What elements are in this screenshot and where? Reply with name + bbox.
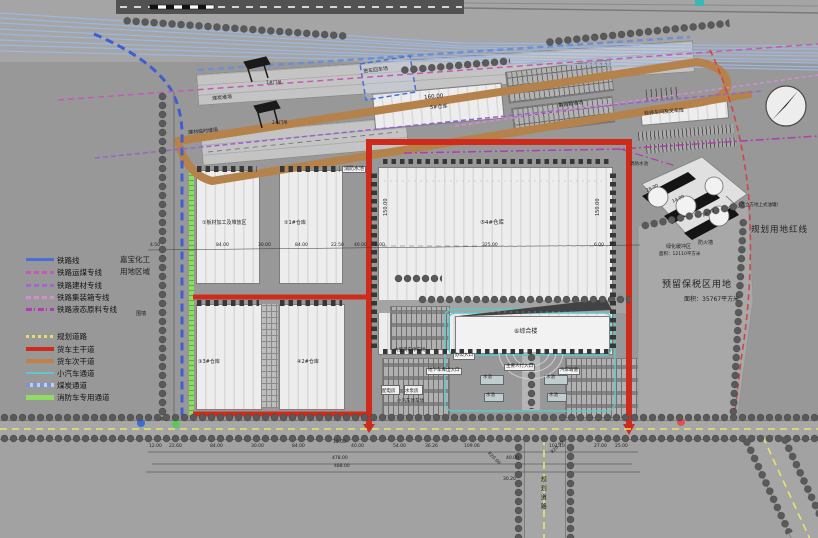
dim-road-width: 40.00 bbox=[506, 457, 519, 462]
warehouse-2-label: ④2#仓库 bbox=[297, 360, 319, 365]
dim: 22.50 bbox=[331, 244, 344, 249]
dim: 36.26 bbox=[425, 445, 438, 450]
legend-label: 铁路建材专线 bbox=[57, 280, 102, 291]
warehouse-4-label: ⑤4#仓库 bbox=[480, 221, 504, 227]
warehouse-2 bbox=[279, 304, 345, 410]
buffer-area-label: 面积：12110平方米 bbox=[659, 253, 700, 258]
dim: 325.00 bbox=[482, 244, 498, 249]
tree-col-east-boundary bbox=[729, 218, 748, 418]
tree-row-road-south bbox=[0, 434, 818, 443]
dock-trucks bbox=[280, 300, 342, 306]
legend-swatch-road-4 bbox=[26, 383, 54, 387]
dim-wh4-height: 150.00 bbox=[596, 199, 601, 217]
legend-label: 规划道路 bbox=[57, 331, 87, 342]
dock-trucks bbox=[610, 172, 616, 348]
legend-swatch-rail-0 bbox=[26, 258, 54, 261]
dock-trucks bbox=[383, 159, 609, 164]
tank-note-label: （万立方地上式油罐） bbox=[736, 204, 781, 209]
legend-swatch-road-2 bbox=[26, 359, 54, 363]
car-ramp-label: 汽车坡道 bbox=[558, 368, 580, 375]
dock-trucks bbox=[197, 300, 259, 306]
dock-trucks bbox=[197, 166, 257, 172]
warehouse-1 bbox=[279, 170, 343, 284]
dim: 6.00 bbox=[594, 244, 604, 249]
dim: 84.00 bbox=[210, 445, 223, 450]
legend-swatch-rail-3 bbox=[26, 296, 54, 299]
legend-label: 货车次干道 bbox=[57, 356, 95, 367]
fire-pool-label: 消防水池 bbox=[342, 166, 366, 173]
legend-label: 铁路集装箱专线 bbox=[57, 292, 110, 303]
dim-total: 488.00 bbox=[334, 465, 350, 470]
chemical-zone-label: 嘉宝化工 bbox=[120, 256, 150, 264]
dim: 84.00 bbox=[292, 445, 305, 450]
garage-entry-label: 地下车库出入口 bbox=[426, 368, 462, 375]
legend-label: 小汽车通道 bbox=[57, 368, 95, 379]
legend-label: 货车主干道 bbox=[57, 344, 95, 355]
legend-swatch-road-3 bbox=[26, 372, 54, 374]
railway-main-line bbox=[94, 34, 182, 418]
warehouse-plate-label: ①板材加工及堆放区 bbox=[202, 221, 246, 226]
pool-label: 水池 bbox=[486, 394, 495, 399]
planned-road-label: 规划道路 bbox=[539, 476, 545, 512]
warehouse-1-label: ②1#仓库 bbox=[284, 221, 306, 226]
legend-swatch-rail-2 bbox=[26, 284, 54, 287]
dim: 27.00 bbox=[594, 445, 607, 450]
dim: 40.00 bbox=[354, 244, 367, 249]
pump-room-label: 水泵房 bbox=[405, 390, 419, 395]
dim: 12.00 bbox=[149, 445, 162, 450]
bonded-zone-label: 预留保税区用地 bbox=[662, 281, 732, 290]
dim: 30.00 bbox=[258, 244, 271, 249]
tree-row-road-north bbox=[0, 413, 818, 422]
legend-label: 铁路液态原料专线 bbox=[57, 304, 117, 315]
dim: 22.60 bbox=[169, 445, 182, 450]
dock-trucks bbox=[371, 172, 377, 348]
dim: 109.06 bbox=[464, 445, 480, 450]
dim: 30.00 bbox=[251, 445, 264, 450]
legend-swatch-rail-4 bbox=[26, 308, 54, 311]
legend-label: 铁路线 bbox=[57, 255, 80, 266]
dim: 40.00 bbox=[351, 445, 364, 450]
truck-parking-label: 大型货车停车场 bbox=[394, 349, 426, 354]
compass-north-icon bbox=[766, 86, 806, 126]
car-parking-right bbox=[565, 358, 639, 418]
tree-col-west bbox=[158, 92, 168, 420]
red-line-label: 规划用地红线 bbox=[751, 226, 808, 235]
rack-comb bbox=[646, 87, 681, 102]
warehouse-plate bbox=[196, 170, 260, 284]
legend-label: 铁路运煤专线 bbox=[57, 267, 102, 278]
site-master-plan: 铁路线 铁路运煤专线 铁路建材专线 铁路集装箱专线 铁路液态原料专线 规划道路 … bbox=[0, 0, 818, 538]
legend-label: 消防车专用通道 bbox=[57, 392, 110, 403]
legend-label: 煤炭通道 bbox=[57, 380, 87, 391]
buffer-label: 绿化缓冲区 bbox=[666, 245, 691, 250]
firewall-label: 防火墙 bbox=[698, 241, 713, 246]
main-entry-label: 主要人行入口 bbox=[504, 364, 535, 371]
dim-tank: 28.00 bbox=[646, 185, 660, 195]
dim: 54.00 bbox=[393, 445, 406, 450]
crane-1-label: 1#门吊 bbox=[266, 82, 282, 87]
pool-label: 水池 bbox=[549, 394, 558, 399]
truck-parking-lot bbox=[390, 306, 450, 350]
legend-swatch-road-0 bbox=[26, 335, 54, 338]
tree-row-wh4-inner bbox=[394, 274, 442, 283]
office-label: ⑥综合楼 bbox=[514, 329, 537, 335]
tree-col-sroad-east bbox=[566, 443, 575, 538]
dim-wh4-height: 150.00 bbox=[384, 199, 389, 217]
pool-label: 水池 bbox=[546, 376, 555, 381]
south-field bbox=[0, 438, 818, 538]
car-parking-label: 小汽车停车场 bbox=[397, 400, 424, 405]
dim-tank: 14.00 bbox=[672, 196, 686, 206]
legend-swatch-rail-1 bbox=[26, 271, 54, 274]
dim: 25 bbox=[609, 244, 615, 249]
dim: 25.00 bbox=[615, 445, 628, 450]
dim: 4.50 bbox=[150, 244, 160, 249]
dim: 15.00 bbox=[333, 441, 346, 446]
dim: 84.00 bbox=[216, 244, 229, 249]
warehouse-3-label: ③3#仓库 bbox=[198, 360, 220, 365]
dock-trucks bbox=[280, 166, 340, 172]
dim: 84.00 bbox=[295, 244, 308, 249]
office-entry-label: 办公入口 bbox=[453, 353, 475, 360]
legend-swatch-road-5 bbox=[26, 395, 54, 400]
oil-tank-area bbox=[642, 157, 747, 240]
tree-row-buffer bbox=[640, 200, 746, 231]
dim: 6.00 bbox=[375, 244, 385, 249]
chemical-zone-label: 用地区域 bbox=[120, 268, 150, 276]
rack-row-2 bbox=[646, 137, 736, 154]
conveyor-gap bbox=[261, 304, 278, 408]
pool-label: 水池 bbox=[483, 376, 492, 381]
wall-label: 围墙 bbox=[136, 312, 146, 317]
tree-col-walkway bbox=[527, 353, 536, 409]
warehouse-3 bbox=[196, 304, 262, 410]
fire-pool-label: 消防水池 bbox=[630, 163, 648, 168]
bonded-zone-area-label: 面积：35767平方米 bbox=[684, 297, 739, 303]
legend-swatch-road-1 bbox=[26, 347, 54, 351]
tree-row-office-north bbox=[418, 295, 630, 304]
dim-total: 478.00 bbox=[332, 457, 348, 462]
dim-road-offset: 30.20 bbox=[503, 478, 516, 483]
crane-2-label: 2#门吊 bbox=[272, 122, 288, 127]
liquid-rail-spur bbox=[404, 136, 818, 153]
fire-lane bbox=[189, 166, 194, 416]
power-room-label: 配电房 bbox=[382, 390, 396, 395]
